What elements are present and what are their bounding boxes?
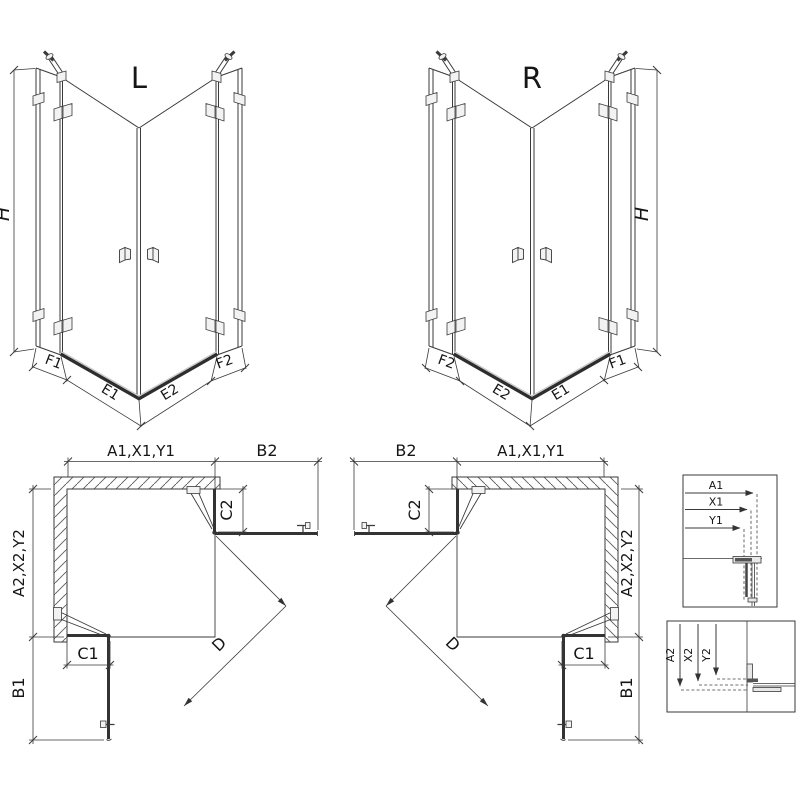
dim-a1x1y1-left: A1,X1,Y1 [107, 442, 175, 460]
shower-enclosure-diagram: L H F1 E1 E2 F2 R H F2 E2 E1 F1 A1,X1,Y1… [0, 0, 800, 800]
detail-dim-a2: A2 [664, 648, 677, 663]
height-dim-label-right: H [631, 207, 653, 221]
dim-b2-right: B2 [395, 441, 416, 460]
variant-label-left: L [131, 61, 147, 95]
dim-d-left: D [208, 633, 230, 655]
iso-view-left: L H F1 E1 E2 F2 [0, 52, 249, 431]
wall-profile-section-side [747, 664, 795, 692]
detail-dim-x1: X1 [709, 496, 724, 509]
plan-view-right: A1,X1,Y1 B2 C2 A2,X2,Y2 C1 B1 D [350, 441, 643, 744]
dim-a2x2y2-left: A2,X2,Y2 [10, 529, 28, 597]
detail-box-depths: A2 X2 Y2 [664, 621, 795, 712]
dim-c2-right: C2 [405, 499, 424, 520]
dim-b1-right: B1 [617, 677, 636, 698]
detail-dim-y1: Y1 [708, 514, 723, 527]
detail-dim-y2: Y2 [700, 648, 713, 663]
plan-view-left: A1,X1,Y1 B2 C2 A2,X2,Y2 C1 B1 D [9, 441, 322, 744]
dim-a2x2y2-right: A2,X2,Y2 [618, 529, 636, 597]
iso-view-right: R H F2 E2 E1 F1 [422, 52, 661, 431]
dim-c1-right: C1 [573, 644, 594, 663]
detail-box-widths: A1 X1 Y1 [683, 475, 777, 607]
dim-c2-left: C2 [217, 499, 236, 520]
dim-b2-left: B2 [256, 441, 277, 460]
height-dim-label-left: H [0, 207, 14, 221]
detail-dim-x2: X2 [682, 648, 695, 663]
dim-a1x1y1-right: A1,X1,Y1 [497, 442, 565, 460]
dim-d-right: D [442, 633, 464, 655]
technical-drawing-sheet: L H F1 E1 E2 F2 R H F2 E2 E1 F1 A1,X1,Y1… [0, 0, 800, 800]
dim-c1-left: C1 [77, 644, 98, 663]
dim-b1-left: B1 [9, 677, 28, 698]
variant-label-right: R [522, 61, 542, 95]
detail-dim-a1: A1 [709, 479, 724, 492]
